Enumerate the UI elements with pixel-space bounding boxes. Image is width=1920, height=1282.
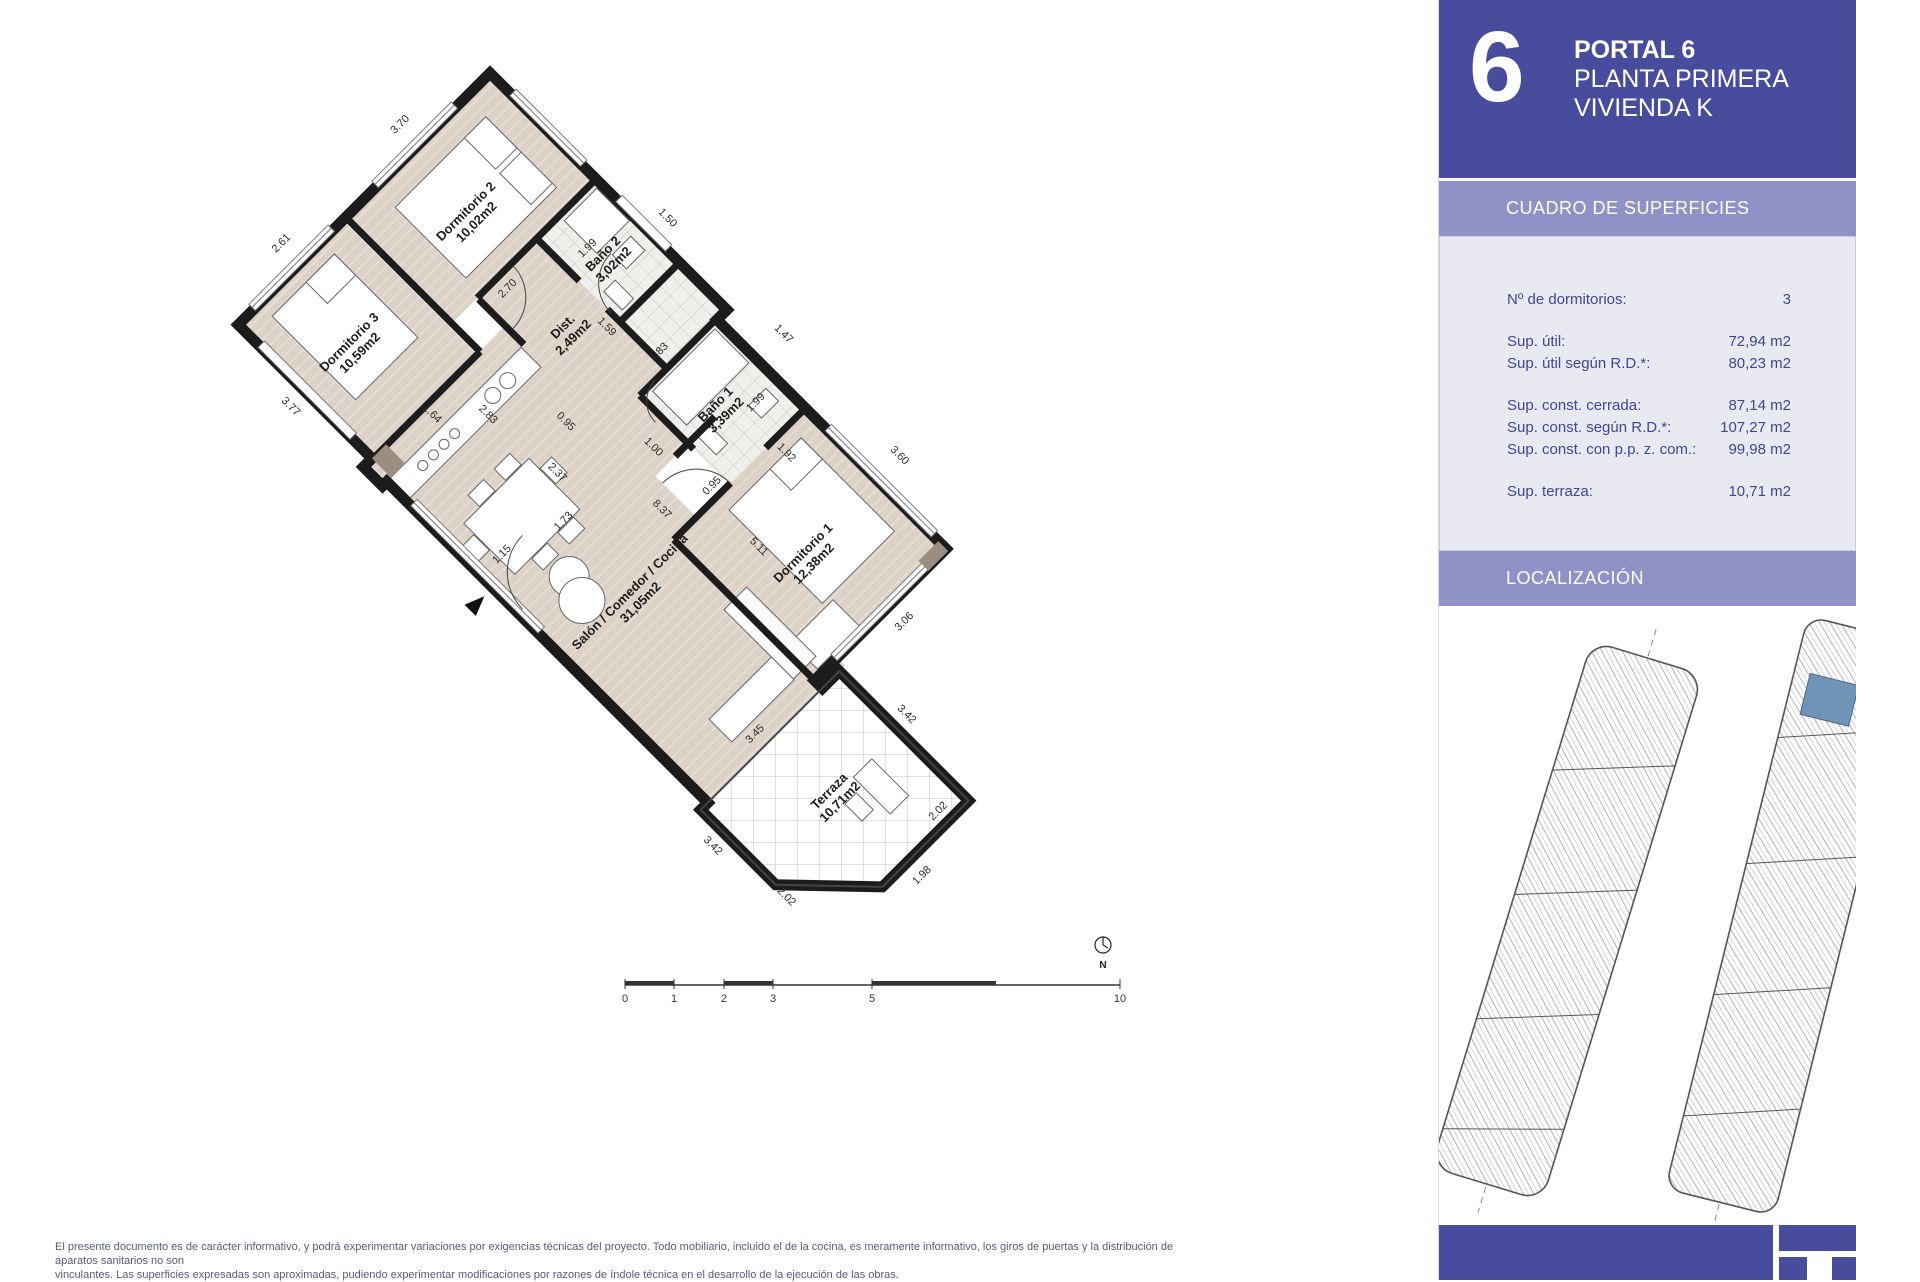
surface-label: Sup. terraza: — [1507, 481, 1593, 503]
north-label: N — [1099, 960, 1106, 971]
location-map — [1439, 606, 1856, 1223]
title-vivienda: VIVIENDA K — [1574, 94, 1789, 123]
disclaimer-line-1: El presente documento es de carácter inf… — [55, 1240, 1175, 1268]
dimension-label: 2.61 — [270, 232, 294, 256]
surface-row: Sup. const. con p.p. z. com.:99,98 m2 — [1440, 439, 1855, 461]
title-planta: PLANTA PRIMERA — [1574, 65, 1789, 94]
footer-bar — [1439, 1225, 1773, 1280]
dimension-label: 1.50 — [656, 206, 680, 230]
dimension-label: 3.70 — [388, 113, 412, 137]
surface-label: Sup. útil según R.D.*: — [1507, 353, 1650, 375]
surface-label: Sup. útil: — [1507, 331, 1565, 353]
scale-label: 1 — [671, 993, 677, 1005]
surface-row: Nº de dormitorios:3 — [1440, 289, 1855, 311]
scale-label: 2 — [721, 993, 727, 1005]
surface-value: 80,23 m2 — [1728, 353, 1791, 375]
brand-logo-icon — [1779, 1257, 1807, 1280]
surface-value: 10,71 m2 — [1728, 481, 1791, 503]
surface-row: Sup. const. cerrada:87,14 m2 — [1440, 395, 1855, 417]
floor-plan-drawing: Dormitorio 210,02m2Dormitorio 310,59m2Ba… — [0, 0, 1438, 1280]
location-section-header: LOCALIZACIÓN — [1439, 551, 1856, 606]
north-indicator-icon: N — [1095, 937, 1111, 971]
dimension-labels: 3.702.612.701.590.951.001.831.991.501.47… — [187, 29, 1132, 974]
sidebar-footer — [1439, 1223, 1856, 1280]
scale-label: 3 — [770, 993, 776, 1005]
surfaces-table: Nº de dormitorios:3Sup. útil:72,94 m2Sup… — [1439, 236, 1856, 551]
scale-label: 5 — [869, 993, 875, 1005]
surface-value: 72,94 m2 — [1728, 331, 1791, 353]
brand-logo-icon — [1779, 1225, 1856, 1251]
sheet-header: 6 PORTAL 6 PLANTA PRIMERA VIVIENDA K — [1439, 0, 1856, 178]
surface-row: Sup. const. según R.D.*:107,27 m2 — [1440, 417, 1855, 439]
scale-label: 0 — [622, 993, 628, 1005]
surface-value: 3 — [1783, 289, 1791, 311]
surface-value: 87,14 m2 — [1728, 395, 1791, 417]
surface-label: Nº de dormitorios: — [1507, 289, 1627, 311]
building-plan-left — [1439, 612, 1712, 1223]
scale-label: 10 — [1114, 993, 1126, 1005]
surface-row: Sup. útil:72,94 m2 — [1440, 331, 1855, 353]
dimension-label: 1.98 — [910, 864, 934, 888]
brand-logo-icon — [1832, 1257, 1856, 1280]
entrance-arrow-icon — [465, 591, 490, 616]
surface-label: Sup. const. con p.p. z. com.: — [1507, 439, 1696, 461]
dimension-label: 3.60 — [888, 444, 912, 468]
title-portal: PORTAL 6 — [1574, 36, 1789, 65]
dimension-label: 1.47 — [772, 322, 796, 346]
dimension-label: 3.06 — [893, 610, 917, 634]
sheet-title: PORTAL 6 PLANTA PRIMERA VIVIENDA K — [1574, 36, 1789, 123]
floorplan-sheet: { "colors": { "header_bg": "#484c9c", "s… — [0, 0, 1920, 1280]
surfaces-section-header: CUADRO DE SUPERFICIES — [1439, 181, 1856, 236]
surface-value: 99,98 m2 — [1728, 439, 1791, 461]
surface-value: 107,27 m2 — [1720, 417, 1791, 439]
surface-label: Sup. const. según R.D.*: — [1507, 417, 1671, 439]
scale-bar: 0123510 — [622, 979, 1126, 1005]
apartment-plan: Dormitorio 210,02m2Dormitorio 310,59m2Ba… — [187, 29, 1132, 974]
dimension-label: 3.77 — [279, 395, 303, 419]
sidebar: 6 PORTAL 6 PLANTA PRIMERA VIVIENDA K CUA… — [1438, 0, 1856, 1280]
disclaimer-text: El presente documento es de carácter inf… — [55, 1240, 1175, 1282]
surface-row: Sup. útil según R.D.*:80,23 m2 — [1440, 353, 1855, 375]
portal-number: 6 — [1469, 8, 1525, 126]
surface-label: Sup. const. cerrada: — [1507, 395, 1641, 417]
surface-row: Sup. terraza:10,71 m2 — [1440, 481, 1855, 503]
